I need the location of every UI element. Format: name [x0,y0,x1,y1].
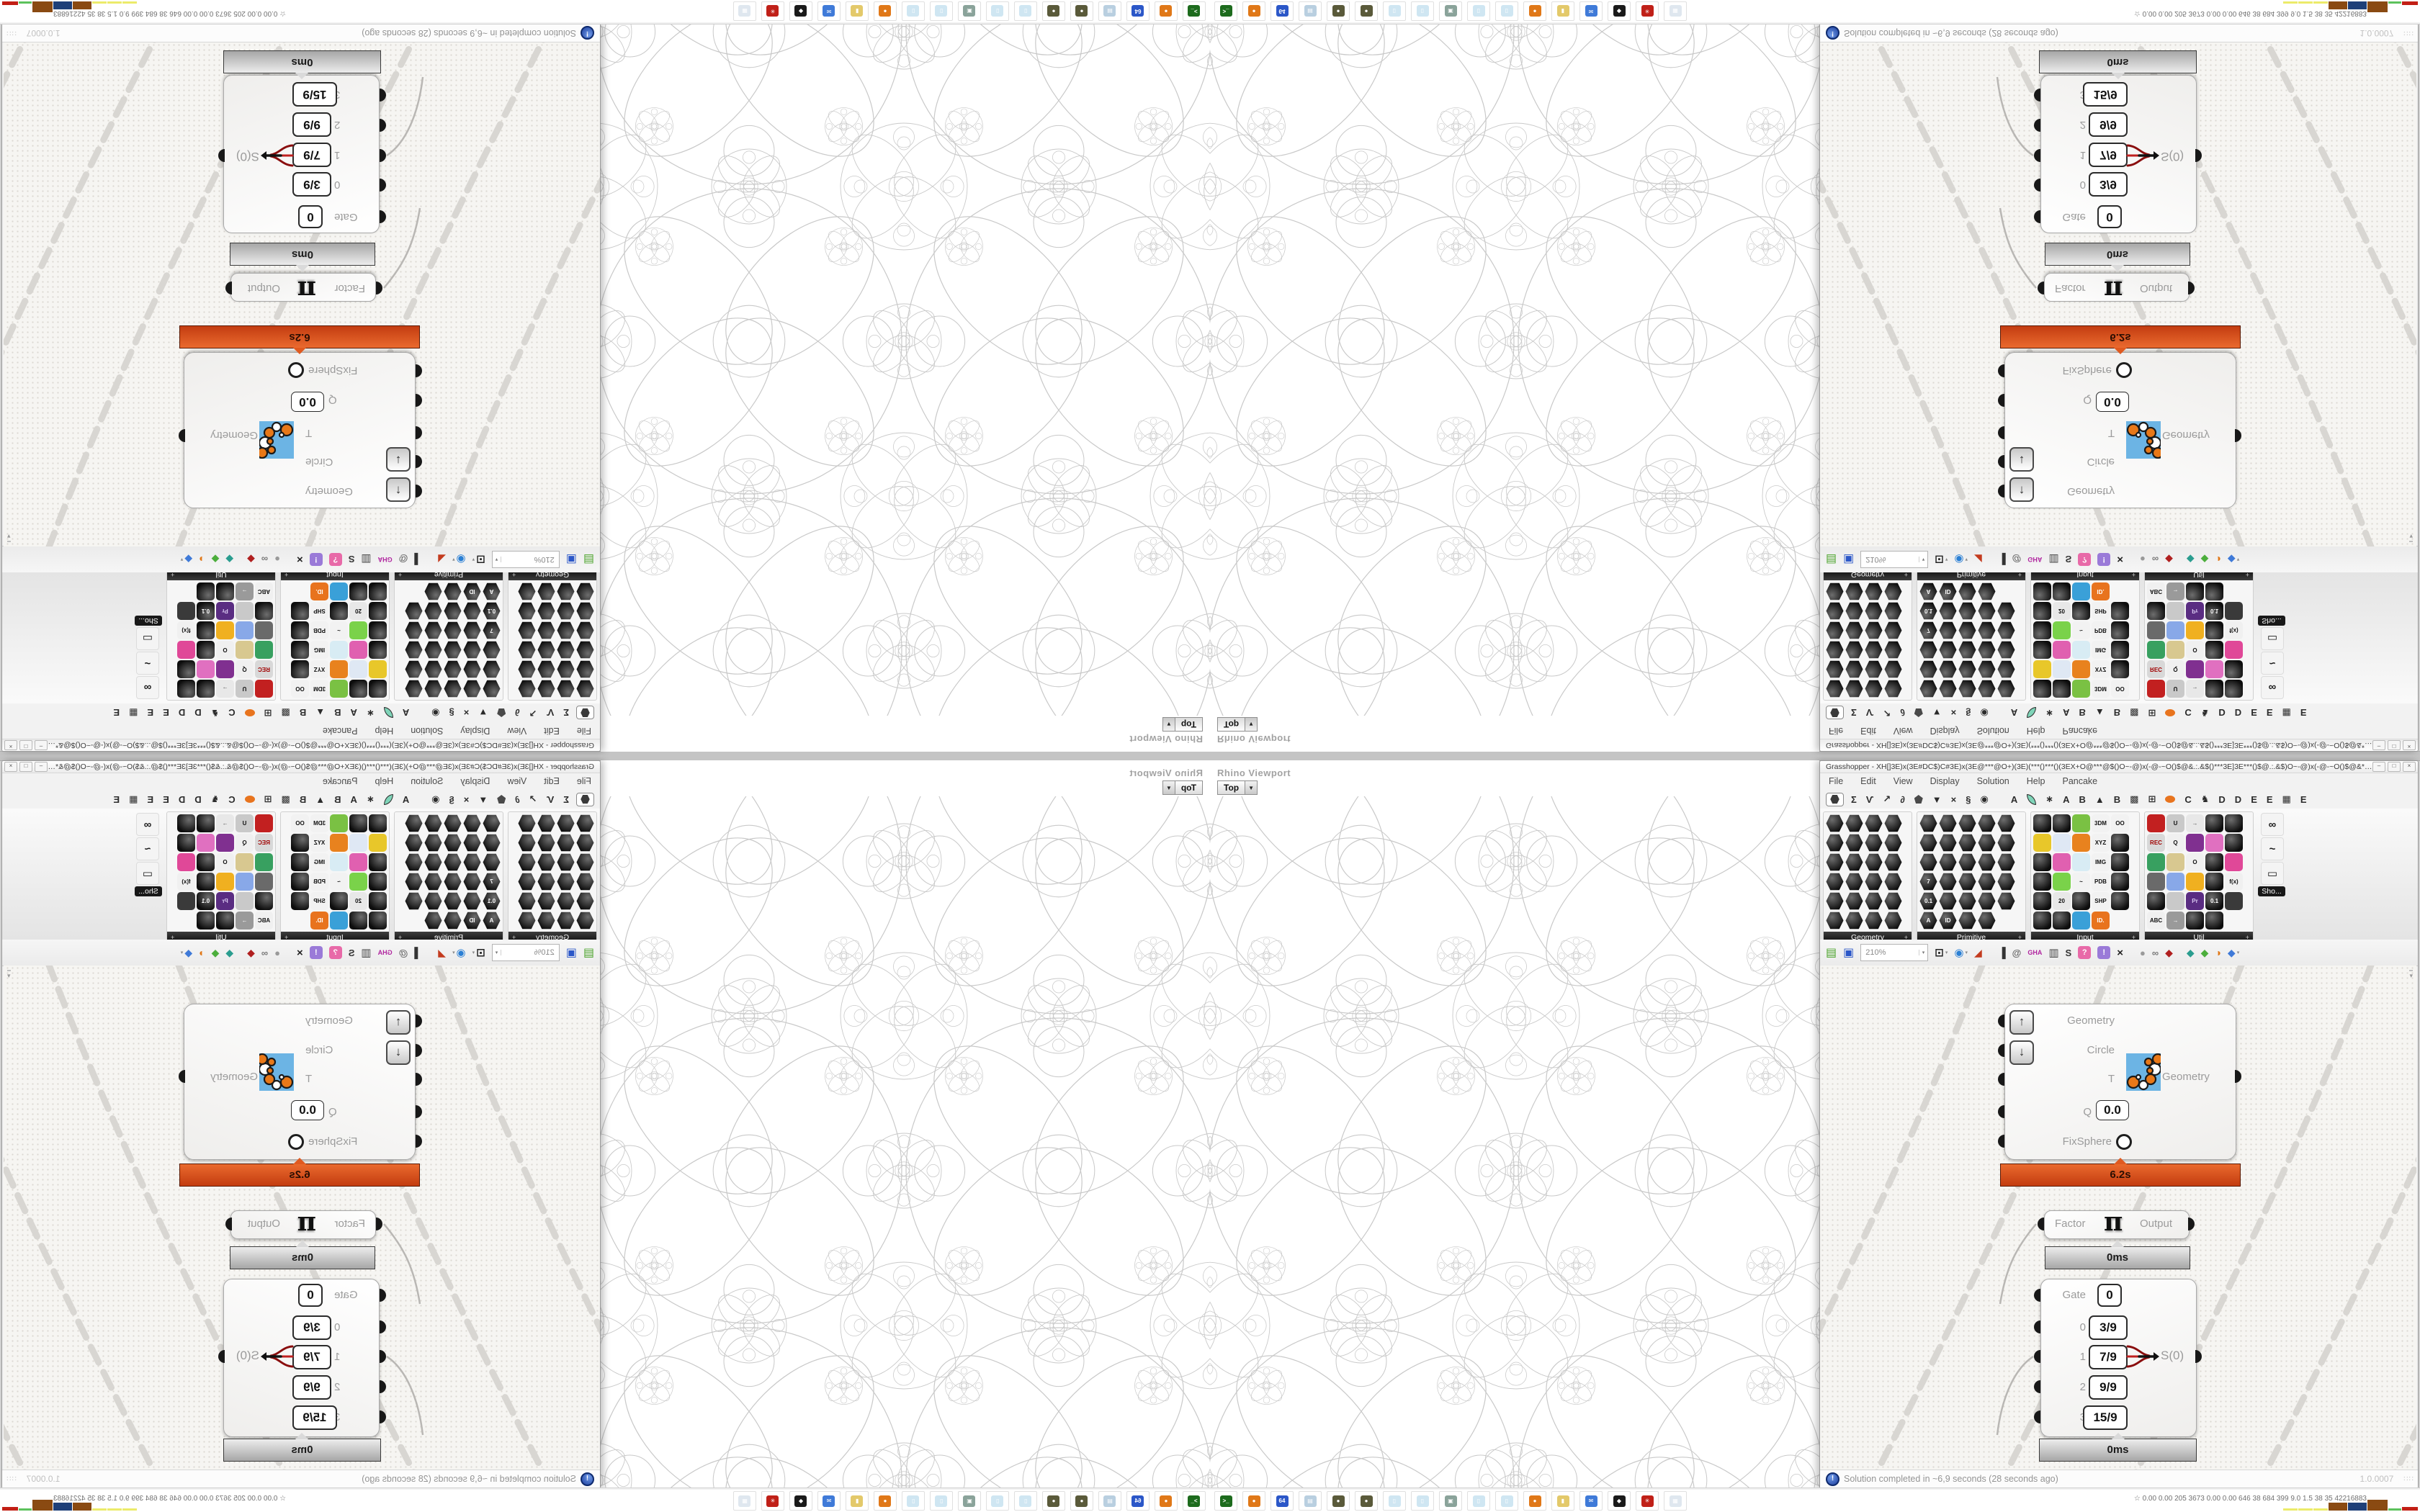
palette-item[interactable] [2205,873,2223,891]
resize-grip[interactable]: ∷∷ [2403,1475,2414,1483]
palette-item[interactable] [405,602,423,620]
stream-filter-component[interactable]: Gate 0 0 3/9 1 7/9 2 9/9 3 15/9 [223,75,380,233]
chevron-down-icon[interactable]: ▾ [1945,557,1948,562]
zoom-level-combo[interactable]: 210%▾ [492,944,560,961]
palette-item[interactable] [518,873,536,891]
palette-tab[interactable]: E [2251,794,2257,805]
document-icon[interactable]: ▤ [1299,1491,1322,1511]
palette-item[interactable] [1997,834,2015,852]
palette-item[interactable] [2225,602,2243,620]
palette-item[interactable] [1826,912,1844,930]
palette-item[interactable]: Pr [2186,602,2204,620]
palette-item[interactable] [1865,621,1883,639]
palette-item[interactable] [405,621,423,639]
palette-item[interactable] [483,834,501,852]
palette-item[interactable] [1978,912,1996,930]
palette-tab[interactable]: Σ [563,708,569,719]
q-value-box[interactable]: 0.0 [2096,392,2129,412]
palette-item[interactable] [2111,873,2129,891]
firefox-icon[interactable]: ● [1523,1,1546,21]
palette-item[interactable]: 3DM [310,814,328,832]
palette-item[interactable]: ID [463,912,481,930]
palette-item[interactable] [330,641,348,659]
palette-item[interactable] [2186,912,2204,930]
minimize-button[interactable]: – [35,740,48,750]
palette-tab[interactable]: Σ [1851,708,1857,719]
menu-file[interactable]: File [577,776,591,786]
palette-tab[interactable]: C [228,708,235,719]
palette-item[interactable]: 20 [349,602,367,620]
palette-item[interactable] [1884,641,1902,659]
palette-item[interactable] [197,641,215,659]
palette-item[interactable] [537,680,555,698]
workstation-icon[interactable]: ▣ [1439,1491,1462,1511]
palette-tab[interactable] [2027,708,2036,719]
palette-tab[interactable]: E [147,794,153,805]
palette-item[interactable] [518,912,536,930]
annotate-button[interactable]: @ [2012,948,2022,958]
stream-value-box[interactable]: 9/9 [292,112,331,137]
palette-group-label[interactable]: Sho... [135,616,162,626]
arrow-up-button[interactable]: ↑ [386,477,411,502]
palette-item[interactable] [444,853,462,871]
palette-item[interactable] [2205,853,2223,871]
palette-tab[interactable]: D [2235,794,2241,805]
palette-item[interactable] [2111,621,2129,639]
palette-item[interactable] [369,814,387,832]
palette-tab[interactable]: B [334,708,341,719]
viewport-tab-top[interactable]: Top ▼ [1162,780,1203,795]
palette-item[interactable]: Pr [216,602,234,620]
palette-item[interactable] [2033,641,2051,659]
palette-tab[interactable] [576,706,594,720]
palette-item[interactable]: Pr [216,892,234,910]
gate-value-box[interactable]: 0 [298,1284,323,1307]
palette-item[interactable] [1978,641,1996,659]
menu-view[interactable]: View [507,776,526,786]
palette-item[interactable] [576,641,594,659]
palette-tab[interactable]: § [449,708,454,719]
open-button[interactable]: ▤ [583,552,594,567]
menu-file[interactable]: File [1829,726,1843,736]
palette-item[interactable] [2205,660,2223,678]
palette-item[interactable] [518,621,536,639]
stream-value-box[interactable]: 7/9 [292,143,331,167]
q-value-box[interactable]: 0.0 [2096,1100,2129,1120]
palette-item[interactable] [2072,660,2090,678]
palette-item[interactable]: ▭ [2261,627,2284,650]
palette-item[interactable]: 20 [2053,892,2071,910]
badge-icon[interactable]: ● [1355,1491,1378,1511]
palette-item[interactable]: ID. [310,912,328,930]
palette-item[interactable]: 3DM [2092,680,2110,698]
palette-item[interactable] [2147,621,2165,639]
palette-tab[interactable]: D [2218,794,2225,805]
palette-tab[interactable]: × [464,708,470,719]
palette-item[interactable] [255,873,273,891]
menu-file[interactable]: File [1829,776,1843,786]
palette-item[interactable] [1939,621,1957,639]
palette-item[interactable] [2205,814,2223,832]
resize-grip[interactable]: ∷∷ [6,1475,17,1483]
calculator-icon[interactable]: ▦ [1664,1491,1687,1511]
palette-tab[interactable]: Ѵ [547,708,555,719]
preview-off-button[interactable]: ● [2140,554,2146,565]
zoom-level-value[interactable]: 210% [501,948,558,957]
palette-item[interactable] [1919,814,1937,832]
palette-item[interactable] [1958,912,1976,930]
palette-item[interactable] [463,873,481,891]
palette-item[interactable] [2033,873,2051,891]
palette-item[interactable] [405,873,423,891]
palette-item[interactable] [1865,912,1883,930]
palette-item[interactable] [2166,641,2184,659]
document-window-button[interactable]: ▥ [2048,553,2058,566]
maximize-button[interactable]: □ [2388,740,2401,750]
preview-quality-button[interactable]: ◆▾ [181,554,192,566]
palette-item[interactable]: ~ [2072,621,2090,639]
notepad-icon[interactable]: ▯ [902,1491,925,1511]
palette-item[interactable] [1826,814,1844,832]
gate-value-box[interactable]: 0 [2097,1284,2122,1307]
palette-tab[interactable] [2027,794,2036,805]
preview-eye-button[interactable]: ◉▾ [1954,553,1968,566]
palette-item[interactable] [216,660,234,678]
preview-eye-button[interactable]: ◉▾ [452,553,466,566]
firefox-icon[interactable]: ● [874,1,897,21]
palette-item[interactable] [444,834,462,852]
palette-item[interactable] [1978,853,1996,871]
document-icon[interactable]: ▤ [1098,1,1121,21]
palette-item[interactable]: 0.1 [483,892,501,910]
palette-item[interactable] [576,621,594,639]
canvas-scroll-hint-icon[interactable]: ▾ [7,532,11,542]
grasshopper-titlebar[interactable]: Grasshopper - XH[]3E)x(3E#DC$)C#3E)x(3E@… [1820,761,2418,773]
palette-item[interactable] [1845,834,1863,852]
palette-item[interactable]: O [216,641,234,659]
palette-tab[interactable]: A [403,708,409,719]
resize-grip[interactable]: ∷∷ [2403,30,2414,37]
palette-item[interactable] [557,641,575,659]
palette-item[interactable]: ID [1939,582,1957,600]
palette-item[interactable] [444,641,462,659]
palette-item[interactable] [1997,853,2015,871]
fixsphere-component[interactable]: ↑ ↓ Geometry Circle T Q 0.0 FixSphere [2004,1004,2236,1160]
badge-icon[interactable]: ● [1070,1,1093,21]
palette-item[interactable] [537,582,555,600]
palette-item[interactable]: ▭ [136,627,159,650]
palette-tab[interactable] [1914,708,1923,717]
folder-icon[interactable]: ▮ [1551,1491,1574,1511]
palette-item[interactable]: OO [2111,814,2129,832]
palette-tab[interactable]: A [351,708,357,719]
annotate-button[interactable]: @ [399,948,408,958]
notepad-icon[interactable]: ▯ [986,1491,1009,1511]
palette-item[interactable] [2225,834,2243,852]
palette-item[interactable]: ∞ [136,676,159,699]
idea-button[interactable]: ! [310,553,323,566]
preview-shaded-button[interactable]: ◆ [247,947,255,959]
palette-item[interactable] [255,892,273,910]
palette-item[interactable] [2147,680,2165,698]
palette-item[interactable] [1997,621,2015,639]
palette-item[interactable]: U [2166,814,2184,832]
palette-tab[interactable]: A [2063,794,2069,805]
palette-item[interactable] [291,892,309,910]
palette-item[interactable] [463,892,481,910]
palette-item[interactable]: SHP [310,602,328,620]
palette-item[interactable]: → [2186,680,2204,698]
palette-item[interactable] [177,641,195,659]
palette-item[interactable] [369,680,387,698]
palette-item[interactable] [197,621,215,639]
palette-tab[interactable]: E [2267,794,2273,805]
palette-item[interactable] [2072,892,2090,910]
palette-item[interactable]: 0.1 [1919,892,1937,910]
palette-tab[interactable]: D [179,708,185,719]
palette-item[interactable] [255,853,273,871]
arrow-up-button[interactable]: ↑ [2009,1010,2034,1035]
chevron-down-icon[interactable]: ▾ [1919,950,1928,955]
palette-item[interactable] [1845,582,1863,600]
palette-tab[interactable]: ▦ [2282,793,2291,805]
palette-item[interactable] [424,912,442,930]
palette-item[interactable] [1958,853,1976,871]
palette-item[interactable] [2111,660,2129,678]
viewport-tab-label[interactable]: Top [1175,717,1203,732]
chevron-down-icon[interactable]: ▾ [472,950,475,955]
gha-installer-button[interactable]: GHA [2027,556,2042,563]
chevron-down-icon[interactable]: ▾ [452,950,455,955]
palette-item[interactable] [1826,582,1844,600]
selected-only-preview-button[interactable]: ◆ [2187,947,2195,959]
palette-item[interactable] [518,892,536,910]
palette-item[interactable] [255,641,273,659]
stream-value-box[interactable]: 15/9 [292,82,337,107]
palette-item[interactable] [1884,621,1902,639]
palette-item[interactable] [1919,680,1937,698]
workstation-icon[interactable]: ▣ [1439,1,1462,21]
palette-tab[interactable]: Σ [563,794,569,805]
palette-item[interactable] [369,834,387,852]
zoom-extents-button[interactable]: ⊡▾ [1935,553,1948,566]
palette-tab[interactable] [245,796,255,803]
palette-item[interactable] [2225,853,2243,871]
palette-item[interactable] [2186,582,2204,600]
palette-item[interactable] [369,621,387,639]
floppy-icon[interactable]: 64 [1126,1,1149,21]
palette-item[interactable] [1845,680,1863,698]
palette-tab[interactable]: ▲ [315,794,325,805]
palette-tab[interactable]: C [2184,794,2191,805]
palette-item[interactable]: SHP [310,892,328,910]
palette-item[interactable] [1997,814,2015,832]
canvas-scroll-hint-icon[interactable]: ▾ [2409,970,2413,980]
palette-tab[interactable]: B [2114,794,2120,805]
palette-item[interactable] [557,892,575,910]
palette-tab[interactable]: Ѵ [547,794,555,805]
palette-item[interactable] [1845,814,1863,832]
fixsphere-toggle[interactable] [288,362,304,378]
palette-item[interactable] [1978,892,1996,910]
palette-tab[interactable]: ∗ [367,707,375,719]
palette-item[interactable] [2225,892,2243,910]
palette-item[interactable]: f(x) [177,873,195,891]
palette-item[interactable] [2166,621,2184,639]
palette-item[interactable] [2205,680,2223,698]
palette-item[interactable]: Pr [2186,892,2204,910]
palette-item[interactable] [444,602,462,620]
palette-item[interactable] [537,641,555,659]
palette-item[interactable] [557,680,575,698]
palette-item[interactable] [1978,621,1996,639]
viewport-tab-dropdown-icon[interactable]: ▼ [1245,780,1258,795]
palette-item[interactable]: 7 [483,621,501,639]
gate-value-box[interactable]: 0 [298,205,323,228]
badge-icon[interactable]: ● [1042,1491,1065,1511]
palette-item[interactable]: f(x) [2225,873,2243,891]
palette-item[interactable] [557,602,575,620]
palette-item[interactable]: A [483,912,501,930]
calculator-icon[interactable]: ▦ [1664,1,1687,21]
document-icon[interactable]: ▤ [1299,1,1322,21]
palette-item[interactable] [1884,582,1902,600]
palette-item[interactable]: ABC [255,912,273,930]
palette-item[interactable] [369,873,387,891]
help-button[interactable]: ? [2078,553,2091,566]
document-icon[interactable]: ▤ [1098,1491,1121,1511]
palette-item[interactable] [557,814,575,832]
palette-item[interactable] [2033,814,2051,832]
palette-tab[interactable]: ∂ [515,708,519,719]
menu-edit[interactable]: Edit [544,726,560,736]
palette-item[interactable] [369,602,387,620]
palette-item[interactable] [1939,834,1957,852]
mail-icon[interactable]: ✉ [817,1,841,21]
palette-item[interactable] [1845,912,1863,930]
palette-tab[interactable] [245,709,255,716]
palette-item[interactable] [537,621,555,639]
preview-off-button[interactable]: ● [2140,948,2146,958]
palette-item[interactable]: XYZ [2092,660,2110,678]
palette-tab[interactable]: ◉ [1980,707,1988,719]
palette-tab[interactable]: B [2114,708,2120,719]
palette-item[interactable] [349,853,367,871]
palette-tab[interactable]: Ѵ [1866,794,1874,805]
chevron-down-icon[interactable]: ▾ [452,557,455,562]
palette-item[interactable] [424,621,442,639]
palette-tab[interactable]: ▩ [2130,793,2138,805]
folder-icon[interactable]: ▮ [846,1,869,21]
palette-item[interactable]: ~ [330,873,348,891]
palette-tab[interactable]: × [464,794,470,805]
palette-tab[interactable] [1826,706,1844,720]
selected-shaded-button[interactable]: ◑ [2215,554,2220,565]
palette-item[interactable] [1884,892,1902,910]
selected-only-preview-button[interactable]: ◆ [225,947,233,959]
stream-value-box[interactable]: 3/9 [292,1315,331,1340]
cat-icon[interactable]: ◆ [789,1491,812,1511]
preview-wireframe-button[interactable]: ∞ [261,948,268,958]
idea-button[interactable]: ! [2097,553,2110,566]
palette-item[interactable] [463,621,481,639]
document-window-button[interactable]: ▥ [361,553,371,566]
palette-item[interactable] [2147,602,2165,620]
stream-value-box[interactable]: 15/9 [2083,82,2128,107]
palette-item[interactable] [1845,621,1863,639]
palette-item[interactable]: U [2166,680,2184,698]
palette-item[interactable] [2225,641,2243,659]
palette-item[interactable] [1826,660,1844,678]
palette-item[interactable] [463,680,481,698]
palette-item[interactable]: IMG [2092,641,2110,659]
notepad-icon[interactable]: ▯ [902,1,925,21]
palette-item[interactable] [1884,814,1902,832]
palette-item[interactable] [537,814,555,832]
palette-item[interactable] [1939,853,1957,871]
palette-item[interactable] [537,834,555,852]
calculator-icon[interactable]: ▦ [733,1,756,21]
palette-item[interactable] [537,853,555,871]
palette-item[interactable] [1865,814,1883,832]
palette-tab[interactable]: ▦ [129,707,138,719]
arrow-down-button[interactable]: ↓ [386,447,411,472]
palette-item[interactable]: ABC [2147,912,2165,930]
palette-item[interactable]: ABC [2147,582,2165,600]
chevron-down-icon[interactable]: ▾ [493,557,502,562]
preview-eye-button[interactable]: ◉▾ [452,946,466,959]
palette-item[interactable] [1958,680,1976,698]
palette-item[interactable] [1958,602,1976,620]
palette-item[interactable] [236,892,254,910]
badge-icon[interactable]: ● [1355,1,1378,21]
menu-help[interactable]: Help [2027,776,2045,786]
palette-item[interactable] [576,892,594,910]
palette-item[interactable] [1939,814,1957,832]
palette-tab[interactable] [1826,793,1844,806]
zoom-level-combo[interactable]: 210%▾ [1860,551,1928,568]
palette-item[interactable] [2033,680,2051,698]
notepad-icon[interactable]: ▯ [930,1491,953,1511]
palette-item[interactable] [2205,641,2223,659]
firefox-icon[interactable]: ● [1155,1491,1178,1511]
palette-item[interactable] [1884,602,1902,620]
palette-item[interactable]: XYZ [2092,834,2110,852]
palette-item[interactable]: → [216,814,234,832]
palette-item[interactable] [2053,680,2071,698]
palette-item[interactable] [1826,602,1844,620]
palette-item[interactable]: OO [2111,680,2129,698]
palette-item[interactable]: 20 [2053,602,2071,620]
red-app-icon[interactable]: ✳ [1636,1491,1659,1511]
viewport-tab-dropdown-icon[interactable]: ▼ [1162,780,1175,795]
palette-item[interactable] [197,834,215,852]
palette-item[interactable] [2225,814,2243,832]
palette-item[interactable] [2033,660,2051,678]
palette-item[interactable] [1958,873,1976,891]
palette-tab[interactable]: ⊞ [264,793,272,805]
workstation-icon[interactable]: ▣ [958,1491,981,1511]
save-button[interactable]: ▣ [1843,552,1854,567]
palette-item[interactable]: ID. [310,582,328,600]
notepad-icon[interactable]: ▯ [986,1,1009,21]
palette-item[interactable] [2166,853,2184,871]
palette-item[interactable] [483,660,501,678]
selected-only-preview-button[interactable]: ◆ [2187,554,2195,566]
palette-item[interactable] [2053,582,2071,600]
chevron-down-icon[interactable]: ▾ [2237,950,2240,955]
help-button[interactable]: ? [329,553,342,566]
